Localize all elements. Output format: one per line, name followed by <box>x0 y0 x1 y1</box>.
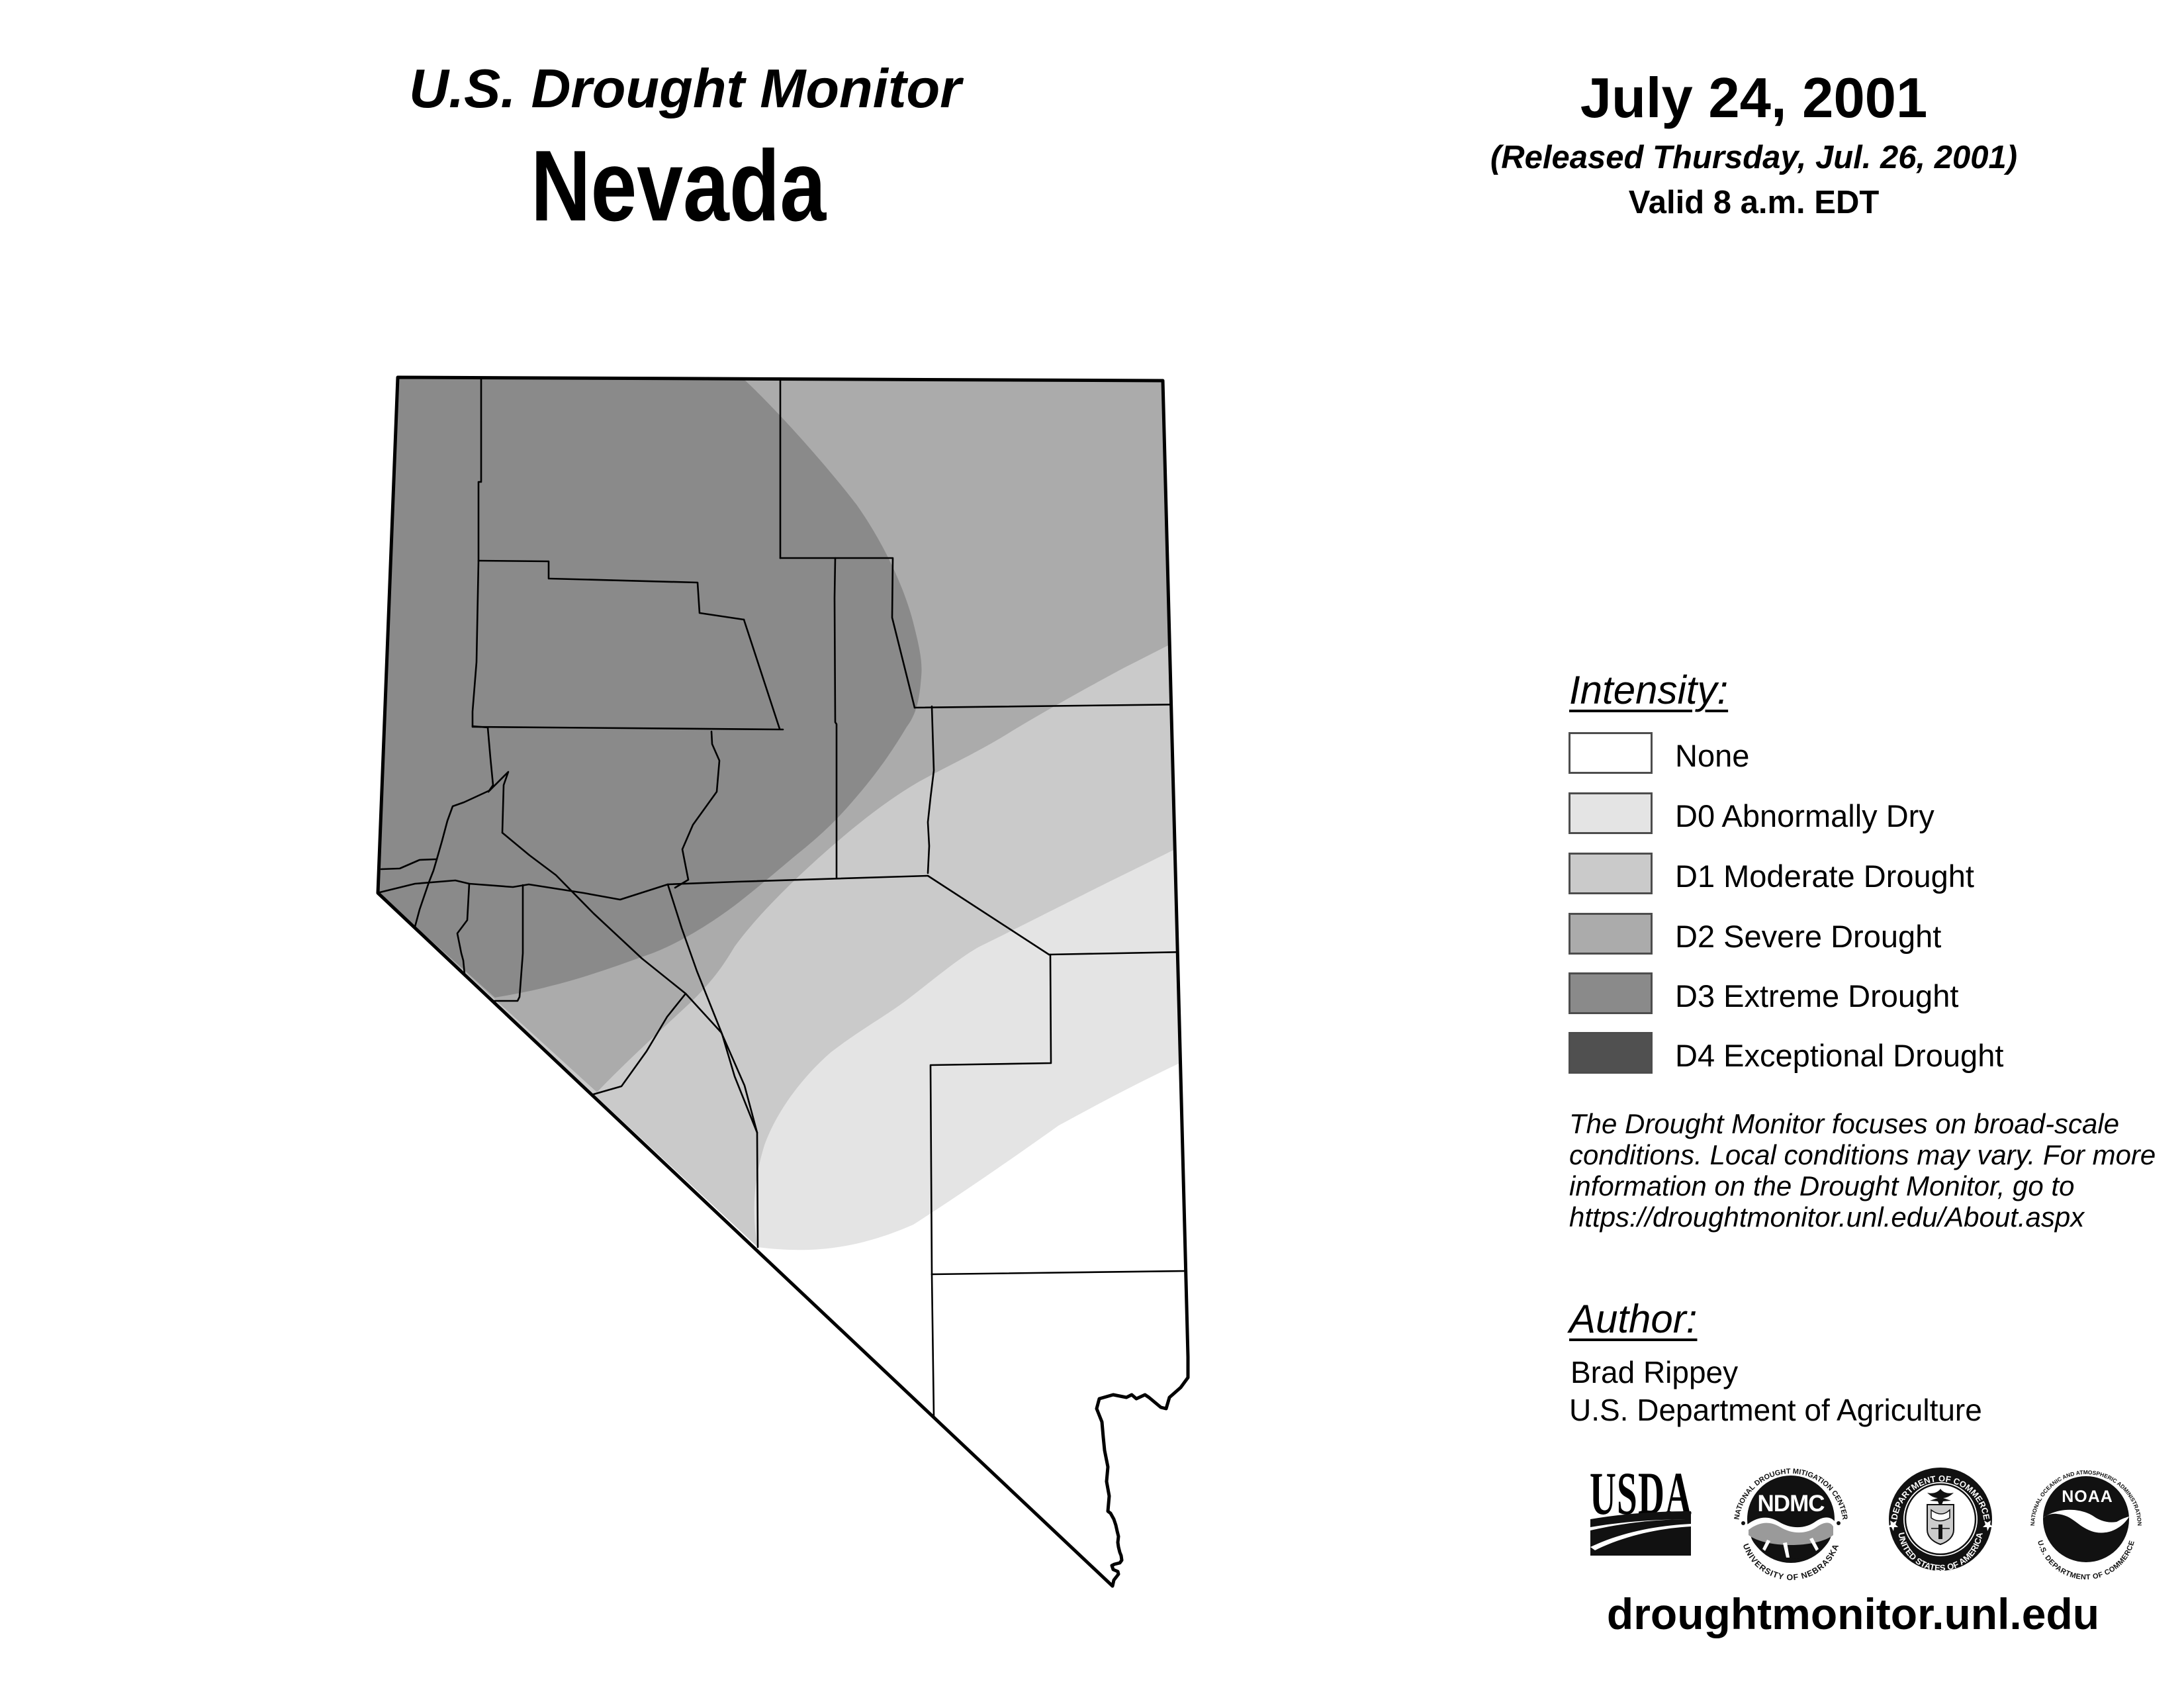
svg-text:NOAA: NOAA <box>2062 1487 2113 1506</box>
svg-text:NDMC: NDMC <box>1758 1491 1825 1517</box>
